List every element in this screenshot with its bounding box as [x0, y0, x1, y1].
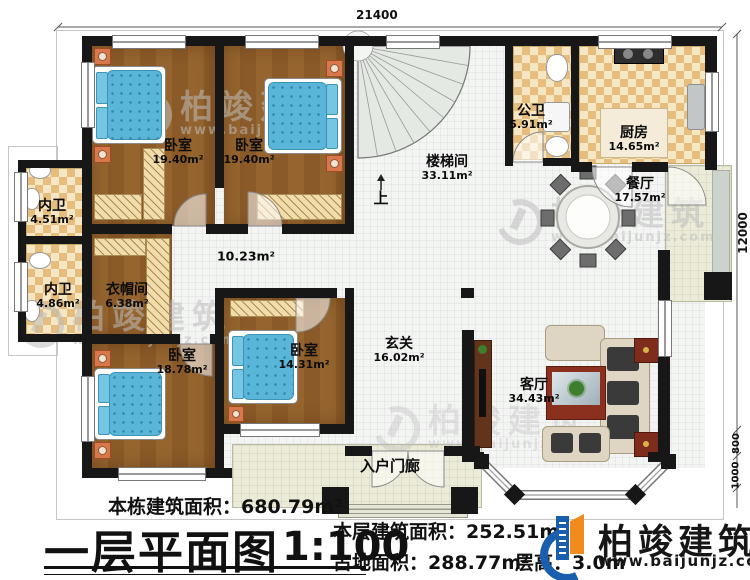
window — [386, 35, 440, 49]
window — [598, 35, 672, 49]
room-area: 16.02m² — [373, 352, 424, 364]
room-name: 内卫 — [36, 283, 79, 298]
wall-segment — [82, 224, 172, 234]
wall-segment — [505, 158, 513, 166]
room-name: 卧室 — [152, 139, 203, 154]
dim-top: 21400 — [356, 8, 398, 22]
window — [112, 35, 186, 49]
room-name: 卧室 — [223, 139, 274, 154]
wall-segment — [571, 36, 579, 172]
room-name: 内卫 — [30, 199, 73, 214]
land-area: 占地面积：288.77m² — [333, 548, 529, 575]
room-area: 14.31m² — [278, 359, 329, 371]
room-label-bedroom-bl: 卧室 18.78m² — [156, 349, 207, 375]
window — [658, 300, 672, 357]
room-name: 入户门廊 — [360, 459, 420, 475]
room-label-cloak: 衣帽间 6.38m² — [105, 283, 148, 309]
wall-segment — [543, 158, 579, 166]
room-area: 6.38m² — [105, 298, 148, 310]
wall-segment — [206, 224, 248, 234]
wall-segment — [82, 334, 180, 344]
room-name: 衣帽间 — [105, 283, 148, 298]
title-underline — [44, 566, 366, 575]
window — [245, 35, 319, 49]
wall-segment — [461, 288, 474, 298]
room-name: 客厅 — [508, 378, 559, 393]
wall-segment — [18, 236, 90, 244]
wall-segment — [648, 452, 670, 462]
room-label-porch: 入户门廊 — [360, 459, 420, 475]
room-name: 楼梯间 — [421, 155, 472, 170]
wall-segment — [18, 334, 90, 342]
window — [14, 262, 28, 312]
room-area: 4.51m² — [30, 214, 73, 226]
window — [81, 376, 95, 442]
brand-url: www.baijunjz.com — [598, 552, 750, 570]
wall-segment — [345, 36, 354, 228]
room-name: 公卫 — [509, 104, 552, 119]
room-label-bedroom-tl: 卧室 19.40m² — [152, 139, 203, 165]
brand-logo-icon — [540, 514, 590, 572]
room-label-public-bath: 公卫 5.91m² — [509, 104, 552, 130]
floor-plan-page: 柏竣建筑 www.baijunjz.com 柏竣建筑 www.baijunjz.… — [0, 0, 750, 580]
room-name: 玄关 — [373, 337, 424, 352]
window — [705, 72, 719, 132]
room-area: 14.65m² — [608, 141, 659, 153]
room-label-bedroom-bm: 卧室 14.31m² — [278, 344, 329, 370]
bay-window — [474, 454, 676, 505]
room-label-living: 客厅 34.43m² — [508, 378, 559, 404]
wall-segment — [632, 162, 668, 172]
porch-column — [451, 487, 478, 514]
dim-right-sub1: 800 — [731, 433, 742, 454]
room-label-bedroom-tr: 卧室 19.40m² — [223, 139, 274, 165]
dim-right-sub2: 1000 — [730, 462, 741, 490]
room-name: 卧室 — [278, 344, 329, 359]
room-area: 5.91m² — [509, 119, 552, 131]
wall-segment — [18, 160, 90, 168]
room-label-dining: 餐厅 17.57m² — [614, 177, 665, 203]
room-area: 4.86m² — [36, 298, 79, 310]
room-area: 17.57m² — [614, 192, 665, 204]
wall-segment — [210, 334, 216, 344]
wall-segment — [505, 36, 513, 160]
dim-right: 12000 — [736, 212, 750, 254]
wall-segment — [224, 288, 337, 298]
wall-segment — [282, 224, 354, 234]
room-label-stair: 楼梯间 33.11m² — [421, 155, 472, 181]
wall-segment — [579, 162, 592, 172]
room-area: 34.43m² — [508, 393, 559, 405]
wall-segment — [215, 288, 224, 478]
stair-up-label: 上 — [373, 191, 388, 207]
wall-segment — [345, 288, 354, 426]
room-label-bath-upper: 内卫 4.51m² — [30, 199, 73, 225]
room-area: 33.11m² — [421, 170, 472, 182]
window — [240, 423, 320, 437]
up-text: 上 — [373, 191, 388, 207]
room-label-bath-lower: 内卫 4.86m² — [36, 283, 79, 309]
room-label-kitchen: 厨房 14.65m² — [608, 126, 659, 152]
room-area: 19.40m² — [223, 154, 274, 166]
wall-segment — [345, 446, 372, 456]
wall-segment — [462, 452, 484, 462]
window — [14, 172, 28, 222]
window — [118, 467, 206, 481]
room-area: 19.40m² — [152, 154, 203, 166]
room-area: 18.78m² — [156, 364, 207, 376]
hall-area-label: 10.23m² — [217, 249, 275, 262]
building-total-area: 本栋建筑面积：680.79m² — [108, 492, 342, 519]
room-label-foyer: 玄关 16.02m² — [373, 337, 424, 363]
room-name: 餐厅 — [614, 177, 665, 192]
room-area: 10.23m² — [217, 249, 275, 262]
corner-column — [704, 272, 732, 300]
wall-segment — [462, 330, 474, 462]
window — [81, 62, 95, 128]
floor-area: 本层建筑面积：252.51m² — [333, 517, 567, 544]
room-name: 厨房 — [608, 126, 659, 141]
room-name: 卧室 — [156, 349, 207, 364]
